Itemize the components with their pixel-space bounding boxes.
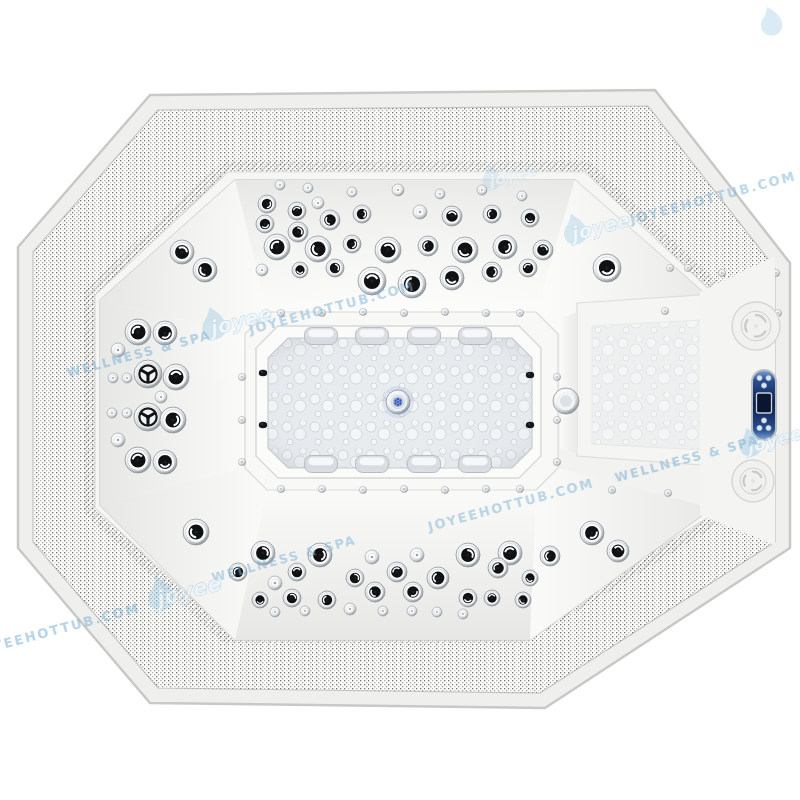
rivet: [359, 486, 366, 493]
rivet: [516, 309, 523, 316]
rivet: [661, 307, 668, 314]
jet-medium: [488, 558, 508, 578]
bench-front-wall: [560, 312, 578, 454]
jet-large: [160, 407, 186, 433]
pillow-pad: [459, 328, 492, 345]
panel-button: [761, 383, 766, 388]
jet-large: [305, 236, 331, 262]
jet-medium: [318, 591, 336, 609]
panel-button: [761, 418, 766, 423]
jet-medium: [484, 590, 500, 606]
bench-light-fixture: [553, 388, 579, 414]
jet-large: [452, 237, 478, 263]
jet-medium: [346, 569, 364, 587]
jet-small: [365, 550, 379, 564]
jet-medium: [288, 202, 306, 220]
air-port: [526, 422, 534, 428]
jet-small: [108, 373, 118, 383]
jet-spinner: [134, 403, 162, 431]
jet-small: [344, 603, 356, 615]
pillow-pad: [408, 328, 441, 345]
jet-small: [300, 606, 310, 616]
jet-small: [407, 606, 417, 616]
jet-medium: [288, 222, 308, 242]
jet-small: [392, 184, 404, 196]
jet-medium: [459, 589, 477, 607]
jet-medium: [403, 582, 423, 602]
rivet: [400, 485, 407, 492]
rivet: [238, 416, 245, 423]
rivet: [359, 308, 366, 315]
panel-button: [757, 425, 762, 430]
jet-medium: [292, 262, 308, 278]
jet-medium: [252, 592, 268, 608]
product-photo: joyeejoyeeJOYEEHOTTUB.COMJOYEEHOTTUB.COM…: [0, 0, 800, 800]
jet-medium: [540, 546, 560, 566]
jet-medium: [258, 195, 276, 213]
jet-medium: [418, 236, 438, 256]
jet-small: [268, 576, 282, 590]
jet-large: [125, 447, 151, 473]
drain: [382, 386, 414, 418]
rivet: [684, 264, 691, 271]
bench-light: [553, 388, 579, 414]
rivet: [400, 309, 407, 316]
jet-large: [593, 254, 621, 282]
panel-button: [757, 375, 762, 380]
rivet: [482, 309, 489, 316]
air-port: [526, 372, 534, 378]
jet-spinner: [134, 360, 162, 388]
floor-drain-light: [382, 386, 414, 418]
jet-small: [155, 391, 167, 403]
jet-small: [458, 609, 468, 619]
jet-large: [264, 234, 290, 260]
jet-large: [170, 240, 194, 264]
jet-medium: [483, 205, 501, 223]
jet-small: [122, 373, 132, 383]
pillow-pad: [356, 328, 389, 345]
jet-large: [125, 319, 151, 345]
jet-small: [410, 548, 424, 562]
rivet: [664, 489, 671, 496]
pillow-pad: [305, 328, 338, 345]
jet-large: [153, 450, 177, 474]
rivet: [482, 485, 489, 492]
jet-small: [517, 191, 527, 201]
jet-small: [378, 606, 388, 616]
jet-medium: [522, 570, 538, 586]
jet-small: [347, 187, 357, 197]
pillow-pad: [408, 456, 441, 473]
jet-medium: [515, 592, 531, 608]
jet-large: [493, 235, 517, 259]
jet-medium: [320, 210, 340, 230]
jet-small: [270, 607, 280, 617]
rivet: [608, 486, 615, 493]
jet-large: [580, 521, 604, 545]
rivet: [441, 486, 448, 493]
jet-large: [427, 567, 449, 589]
jet-small: [432, 607, 442, 617]
rivet: [516, 485, 523, 492]
panel-display: [757, 393, 772, 413]
rivet: [553, 416, 560, 423]
jet-large: [163, 364, 189, 390]
bench-recess: [592, 320, 704, 450]
jet-medium: [343, 235, 361, 253]
watermark-logo-drop: [756, 4, 784, 38]
jet-medium: [353, 205, 371, 223]
air-port: [259, 370, 267, 376]
rivet: [238, 458, 245, 465]
jet-medium: [482, 262, 502, 282]
hot-tub-photo: joyeejoyeeJOYEEHOTTUB.COMJOYEEHOTTUB.COM…: [0, 0, 800, 800]
jet-medium: [326, 259, 344, 277]
jet-large: [440, 266, 464, 290]
jet-medium: [365, 582, 385, 602]
panel-button: [766, 375, 771, 380]
medallion: [732, 460, 774, 502]
jet-small: [107, 408, 117, 418]
rivet: [277, 485, 284, 492]
jet-large: [183, 519, 209, 545]
jet-small: [435, 189, 445, 199]
jet-small: [413, 205, 427, 219]
air-port: [259, 422, 267, 428]
rivet: [553, 458, 560, 465]
rivet: [318, 485, 325, 492]
jet-large: [607, 540, 629, 562]
bench: [560, 294, 716, 466]
jet-large: [456, 543, 480, 567]
jet-medium: [283, 589, 301, 607]
jet-medium: [533, 240, 553, 260]
pillow-pad: [356, 456, 389, 473]
rivet: [553, 373, 560, 380]
jet-medium: [256, 215, 274, 233]
jet-medium: [442, 206, 462, 226]
jet-medium: [387, 562, 407, 582]
jet-small: [303, 183, 313, 193]
jet-medium: [521, 209, 539, 227]
rivet: [238, 373, 245, 380]
jet-large: [193, 258, 217, 282]
pillow-pad: [459, 456, 492, 473]
rivet: [666, 264, 673, 271]
jet-small: [111, 433, 125, 447]
jet-small: [122, 408, 132, 418]
jet-medium: [519, 259, 537, 277]
jet-small: [312, 197, 324, 209]
rivet: [441, 308, 448, 315]
pillow-pad: [305, 456, 338, 473]
rivet: [718, 269, 725, 276]
jet-large: [375, 237, 401, 263]
jet-small: [275, 180, 285, 190]
medallion: [732, 302, 780, 350]
jet-small: [256, 264, 268, 276]
jet-medium: [288, 563, 306, 581]
